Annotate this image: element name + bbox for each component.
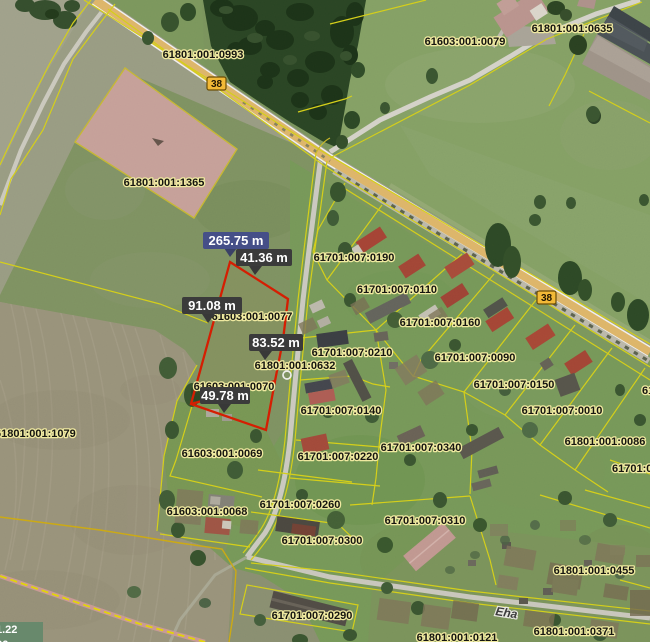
svg-text:38: 38 (211, 79, 223, 90)
svg-text:61701:007:0220: 61701:007:0220 (298, 451, 379, 463)
svg-text:83.52 m: 83.52 m (252, 335, 300, 350)
svg-text:61603:001:0069: 61603:001:0069 (182, 448, 263, 460)
svg-text:61701:007:0160: 61701:007:0160 (400, 317, 481, 329)
svg-text:41.36 m: 41.36 m (240, 250, 288, 265)
svg-text:61603:001:0079: 61603:001:0079 (425, 36, 506, 48)
svg-text:38: 38 (541, 293, 553, 304)
svg-text:61801:001:0635: 61801:001:0635 (532, 23, 613, 35)
svg-text:61701:007:0210: 61701:007:0210 (312, 347, 393, 359)
svg-text:61801:001:0121: 61801:001:0121 (417, 632, 498, 642)
svg-text:61701:007:0340: 61701:007:0340 (381, 442, 462, 454)
svg-text:61701:007:0300: 61701:007:0300 (282, 535, 363, 547)
svg-text:61801:001:0632: 61801:001:0632 (255, 360, 336, 372)
svg-text:61701:007:0110: 61701:007:0110 (357, 284, 437, 296)
svg-text:61801:001:0455: 61801:001:0455 (554, 565, 635, 577)
svg-text:61801:001:0086: 61801:001:0086 (565, 436, 646, 448)
svg-text:91.08 m: 91.08 m (188, 298, 236, 313)
svg-text:61801:001:1365: 61801:001:1365 (124, 177, 205, 189)
svg-text:61701:007: 61701:007 (612, 463, 650, 475)
svg-text:61701:007:0140: 61701:007:0140 (301, 405, 382, 417)
svg-text:61701:007:0090: 61701:007:0090 (435, 352, 516, 364)
svg-text:61701:007:0260: 61701:007:0260 (260, 499, 341, 511)
svg-text:61701:007:0290: 61701:007:0290 (272, 610, 353, 622)
svg-text:61801:001:0993: 61801:001:0993 (163, 49, 244, 61)
svg-text:61701:007:0310: 61701:007:0310 (385, 515, 466, 527)
svg-text:49.78 m: 49.78 m (201, 388, 249, 403)
svg-text:61701:007:0010: 61701:007:0010 (522, 405, 603, 417)
svg-text:61801:001:1079: 61801:001:1079 (0, 428, 76, 440)
svg-text:61701:007:0150: 61701:007:0150 (474, 379, 555, 391)
svg-text:1.22: 1.22 (0, 624, 17, 636)
svg-text:61801:001:0371: 61801:001:0371 (534, 626, 615, 638)
svg-text:616: 616 (642, 385, 650, 397)
svg-text:61701:007:0190: 61701:007:0190 (314, 252, 395, 264)
svg-text:265.75 m: 265.75 m (209, 233, 264, 248)
svg-text:61603:001:0068: 61603:001:0068 (167, 506, 248, 518)
